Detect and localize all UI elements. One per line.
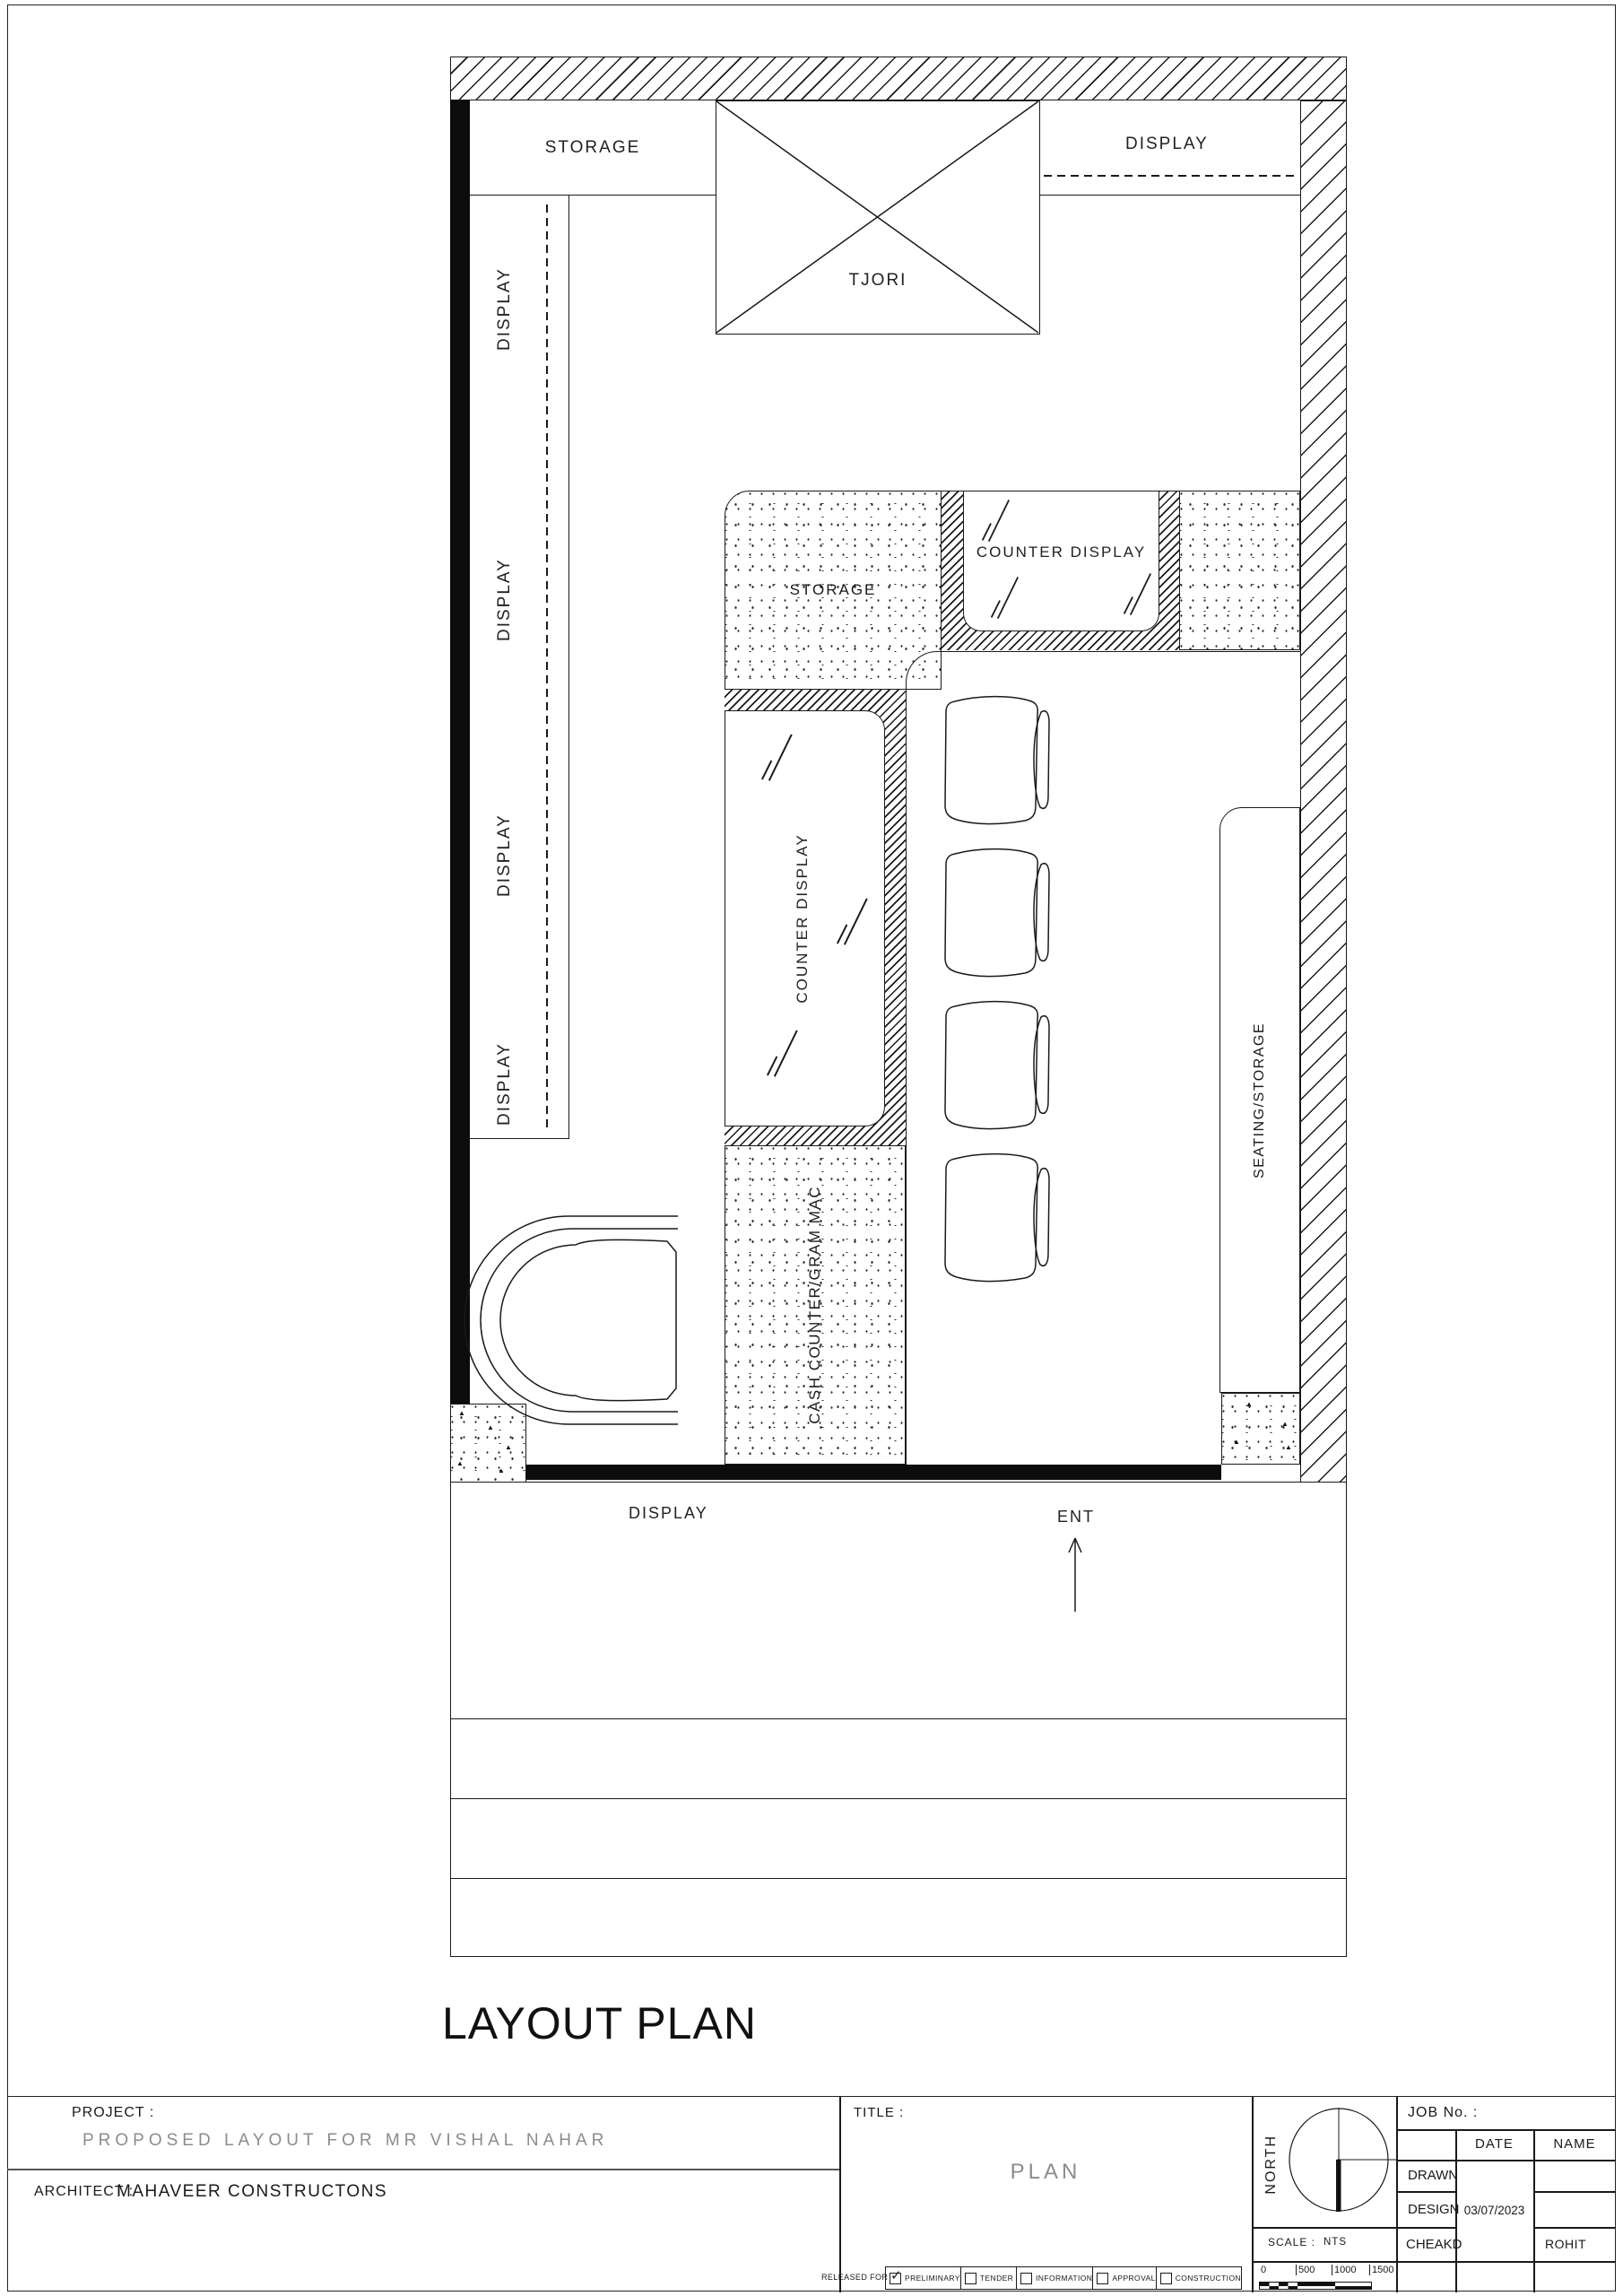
display-strip-label-2: DISPLAY bbox=[495, 534, 515, 641]
speck: ▲ bbox=[458, 1410, 465, 1417]
counter-display-mid-label: COUNTER DISPLAY bbox=[794, 833, 811, 1003]
speck: ▲ bbox=[1281, 1421, 1289, 1428]
scale-value: NTS bbox=[1324, 2237, 1347, 2248]
job-no-label: JOB No. : bbox=[1408, 2105, 1478, 2121]
room-storage-top: STORAGE bbox=[470, 100, 716, 196]
stipple-block-right bbox=[1179, 491, 1300, 650]
title-block: PROJECT : PROPOSED LAYOUT FOR MR VISHAL … bbox=[7, 2096, 1616, 2292]
chair bbox=[939, 845, 1055, 979]
line bbox=[1396, 2160, 1616, 2161]
drawing-sheet: STORAGE TJORI DISPLAY DISPLAY DISPLAY DI… bbox=[0, 0, 1623, 2296]
release-option-information[interactable]: INFORMATION bbox=[1016, 2267, 1092, 2289]
row-label-drawn: DRAWN bbox=[1408, 2168, 1458, 2183]
release-option-label: CONSTRUCTION bbox=[1176, 2274, 1241, 2283]
scalebar-graphic bbox=[1259, 2282, 1372, 2290]
display-strip-label-3: DISPLAY bbox=[495, 789, 515, 897]
display-top-band: DISPLAY bbox=[1040, 100, 1300, 196]
release-option-construction[interactable]: CONSTRUCTION bbox=[1156, 2267, 1241, 2289]
date-header: DATE bbox=[1455, 2136, 1533, 2152]
glass-mark bbox=[980, 497, 1012, 544]
drawing-title: LAYOUT PLAN bbox=[442, 1997, 757, 2049]
line bbox=[1396, 2227, 1455, 2229]
counter-display-top-glass: COUNTER DISPLAY bbox=[963, 491, 1159, 631]
release-option-tender[interactable]: TENDER bbox=[960, 2267, 1016, 2289]
glass-mark bbox=[1122, 570, 1154, 617]
speck: ▲ bbox=[498, 1467, 505, 1474]
scalebar-tick-500: 500 bbox=[1296, 2265, 1315, 2275]
project-value: PROPOSED LAYOUT FOR MR VISHAL NAHAR bbox=[82, 2131, 608, 2151]
display-wall-strip: DISPLAY DISPLAY DISPLAY DISPLAY bbox=[470, 196, 569, 1139]
display-strip-dashed-line bbox=[546, 204, 548, 1128]
room-storage-mid: STORAGE bbox=[725, 491, 942, 690]
display-top-dashed-line bbox=[1044, 175, 1298, 177]
speck: ▲ bbox=[456, 1460, 464, 1467]
front-strip-2 bbox=[450, 1799, 1347, 1879]
title-label: TITLE : bbox=[854, 2105, 904, 2120]
project-architect-divider bbox=[7, 2169, 839, 2170]
line bbox=[1396, 2261, 1616, 2263]
glass-mark bbox=[989, 574, 1021, 621]
seating-storage: SEATING/STORAGE bbox=[1219, 807, 1300, 1393]
cash-counter: CASH COUNTER/GRAM MAC bbox=[725, 1145, 906, 1465]
row-label-design: DESIGN bbox=[1408, 2202, 1460, 2217]
release-option-label: APPROVAL bbox=[1112, 2274, 1155, 2283]
line bbox=[1533, 2129, 1535, 2292]
release-option-approval[interactable]: APPROVAL bbox=[1092, 2267, 1155, 2289]
scalebar-row bbox=[1260, 2286, 1371, 2290]
north-label: NORTH bbox=[1263, 2135, 1280, 2195]
corner-block-right: ▲ ▲ ▲ ▲ bbox=[1221, 1393, 1300, 1465]
release-option-label: TENDER bbox=[980, 2274, 1013, 2283]
chair bbox=[939, 1150, 1055, 1284]
name-header: NAME bbox=[1533, 2136, 1616, 2152]
left-wall bbox=[450, 100, 470, 1404]
front-open-area: DISPLAY ENT bbox=[450, 1482, 1347, 1719]
cash-counter-label: CASH COUNTER/GRAM MAC bbox=[806, 1186, 824, 1424]
project-label: PROJECT : bbox=[72, 2105, 154, 2121]
display-bottom-label: DISPLAY bbox=[629, 1504, 708, 1523]
release-option-label: PRELIMINARY bbox=[905, 2274, 960, 2283]
top-wall-hatch bbox=[450, 57, 1347, 100]
scalebar-tick-1500: 1500 bbox=[1369, 2265, 1393, 2275]
entrance-arrow bbox=[1064, 1529, 1086, 1615]
counter-display-top-label: COUNTER DISPLAY bbox=[976, 544, 1146, 561]
scale-label: SCALE : bbox=[1268, 2236, 1315, 2248]
counter-display-top: COUNTER DISPLAY bbox=[942, 491, 1179, 650]
right-wall-hatch bbox=[1300, 100, 1347, 1483]
row-label-cheakd: CHEAKD bbox=[1406, 2237, 1462, 2252]
checkbox-icon[interactable] bbox=[1160, 2273, 1172, 2284]
counter-display-mid: COUNTER DISPLAY bbox=[725, 690, 906, 1145]
line bbox=[1396, 2191, 1455, 2193]
release-options: PRELIMINARY TENDER INFORMATION APPROVAL … bbox=[885, 2266, 1242, 2290]
speck: ▲ bbox=[1245, 1401, 1253, 1408]
line bbox=[1252, 2227, 1396, 2229]
speck: ▲ bbox=[1233, 1439, 1240, 1446]
tjori-label: TJORI bbox=[844, 271, 913, 291]
architect-value: MAHAVEER CONSTRUCTONS bbox=[117, 2182, 387, 2202]
checkbox-icon[interactable] bbox=[1097, 2273, 1108, 2284]
checkbox-icon[interactable] bbox=[1020, 2273, 1032, 2284]
tjori-box: TJORI bbox=[716, 100, 1040, 335]
chair bbox=[939, 997, 1055, 1132]
title-value: PLAN bbox=[839, 2160, 1252, 2185]
speck: ▲ bbox=[505, 1444, 512, 1451]
design-date: 03/07/2023 bbox=[1455, 2204, 1533, 2217]
glass-mark bbox=[759, 731, 795, 783]
line bbox=[1533, 2227, 1616, 2229]
tjori-cross bbox=[716, 101, 1038, 333]
divider bbox=[839, 2097, 841, 2292]
north-compass-icon bbox=[1281, 2104, 1400, 2219]
glass-mark bbox=[835, 895, 871, 947]
display-strip-label-4: DISPLAY bbox=[495, 1018, 515, 1126]
release-option-label: INFORMATION bbox=[1036, 2274, 1092, 2283]
checkbox-icon[interactable] bbox=[890, 2273, 901, 2284]
counter-display-mid-glass: COUNTER DISPLAY bbox=[725, 710, 885, 1126]
display-top-label: DISPLAY bbox=[1125, 135, 1209, 154]
armchair bbox=[491, 1213, 680, 1428]
north-label-wrap: NORTH bbox=[1261, 2115, 1282, 2213]
speck: ▲ bbox=[1285, 1444, 1292, 1451]
glass-mark bbox=[765, 1027, 801, 1079]
release-option-preliminary[interactable]: PRELIMINARY bbox=[886, 2267, 960, 2289]
chair bbox=[939, 692, 1055, 827]
line bbox=[1252, 2261, 1396, 2263]
seating-storage-label: SEATING/STORAGE bbox=[1252, 1022, 1268, 1178]
line bbox=[1396, 2129, 1616, 2131]
line bbox=[1533, 2191, 1616, 2193]
front-strip-1 bbox=[450, 1719, 1347, 1799]
cheakd-name: ROHIT bbox=[1545, 2237, 1586, 2251]
entrance-label: ENT bbox=[1057, 1508, 1095, 1526]
storage-top-label: STORAGE bbox=[545, 138, 641, 158]
bottom-wall bbox=[526, 1465, 1221, 1480]
scalebar-tick-0: 0 bbox=[1261, 2265, 1266, 2275]
display-strip-label-1: DISPLAY bbox=[495, 243, 515, 351]
checkbox-icon[interactable] bbox=[965, 2273, 976, 2284]
storage-mid-label: STORAGE bbox=[790, 581, 877, 599]
scalebar-tick-1000: 1000 bbox=[1332, 2265, 1356, 2275]
released-for-label: RELEASED FOR bbox=[821, 2273, 888, 2282]
front-strip-3 bbox=[450, 1879, 1347, 1957]
divider bbox=[1252, 2097, 1254, 2292]
